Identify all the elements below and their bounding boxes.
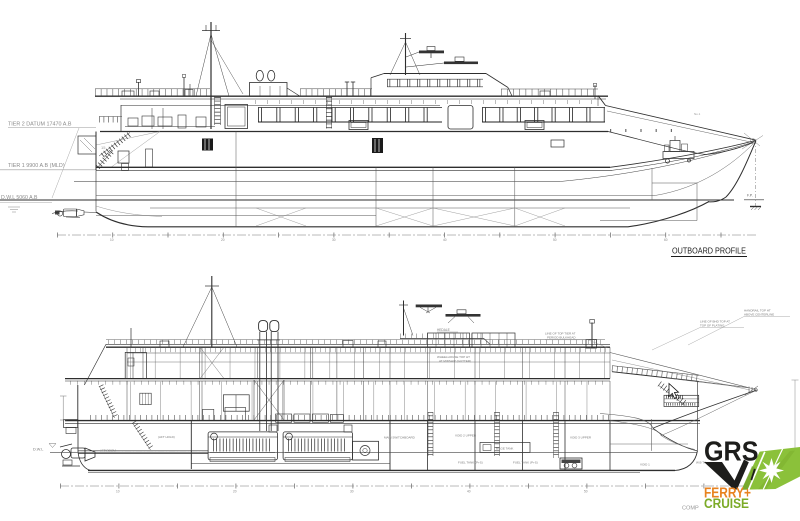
svg-text:(AFT HOLD): (AFT HOLD) bbox=[158, 435, 175, 439]
svg-text:CRUISE: CRUISE bbox=[704, 496, 749, 511]
svg-text:HEDALE: HEDALE bbox=[437, 328, 450, 332]
svg-text:20: 20 bbox=[221, 238, 225, 242]
svg-text:FUEL TANK (P+S): FUEL TANK (P+S) bbox=[458, 461, 483, 465]
svg-text:TIER 1 9900 A.B (MLD): TIER 1 9900 A.B (MLD) bbox=[8, 163, 65, 169]
svg-text:ABOVE CENTERLINE: ABOVE CENTERLINE bbox=[744, 313, 774, 317]
svg-text:40: 40 bbox=[443, 238, 447, 242]
svg-text:AT MIDSHIP (GUTTER): AT MIDSHIP (GUTTER) bbox=[439, 359, 471, 363]
svg-text:50: 50 bbox=[553, 238, 557, 242]
svg-text:30: 30 bbox=[332, 238, 336, 242]
svg-text:MAIN SWITCHBOARD: MAIN SWITCHBOARD bbox=[384, 436, 416, 440]
svg-text:D.W.L: D.W.L bbox=[33, 448, 43, 452]
svg-text:AFT ROOM: AFT ROOM bbox=[100, 449, 116, 453]
svg-text:10: 10 bbox=[116, 490, 120, 494]
svg-text:VOID 1: VOID 1 bbox=[640, 463, 650, 467]
svg-text:FUEL TANK (P+S): FUEL TANK (P+S) bbox=[513, 461, 538, 465]
svg-text:PERIOD BULKHEAD: PERIOD BULKHEAD bbox=[547, 336, 576, 340]
svg-text:TIER 2 DATUM 17470 A.B: TIER 2 DATUM 17470 A.B bbox=[8, 122, 72, 128]
svg-text:GRS: GRS bbox=[704, 436, 759, 467]
svg-text:10: 10 bbox=[110, 238, 114, 242]
svg-text:15: 15 bbox=[101, 145, 106, 150]
svg-text:No.1: No.1 bbox=[694, 112, 701, 116]
svg-text:30: 30 bbox=[350, 490, 354, 494]
svg-text:VOID 2 UPPER: VOID 2 UPPER bbox=[455, 434, 477, 438]
svg-text:40: 40 bbox=[467, 490, 471, 494]
svg-text:COMP: COMP bbox=[682, 506, 699, 512]
svg-text:60: 60 bbox=[664, 238, 668, 242]
svg-text:VOID 3 UPPER: VOID 3 UPPER bbox=[570, 436, 592, 440]
svg-text:TOP OF PLATING: TOP OF PLATING bbox=[700, 324, 725, 328]
svg-text:OUTBOARD PROFILE: OUTBOARD PROFILE bbox=[672, 246, 746, 256]
svg-text:BILGE TANK: BILGE TANK bbox=[496, 447, 513, 451]
svg-text:20: 20 bbox=[233, 490, 237, 494]
svg-text:F.P.: F.P. bbox=[747, 194, 753, 198]
svg-text:50: 50 bbox=[584, 490, 588, 494]
